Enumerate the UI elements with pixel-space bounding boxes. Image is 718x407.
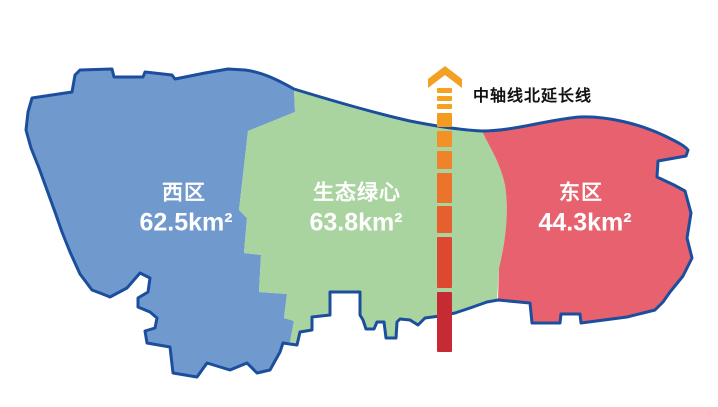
axis-dash <box>437 173 452 203</box>
district-map: 西区 62.5km² 生态绿心 63.8km² 东区 44.3km² 中轴线北延… <box>0 0 718 407</box>
axis-dash <box>437 113 452 127</box>
axis-dash <box>437 151 452 169</box>
axis-dash <box>437 292 452 352</box>
region-west-area: 62.5km² <box>139 211 232 236</box>
axis-dash <box>437 206 452 233</box>
axis-arrow-icon <box>428 66 462 88</box>
axis-dash <box>437 237 452 288</box>
axis-dash <box>437 96 452 101</box>
region-east-label: 东区 <box>559 183 603 204</box>
region-west-label: 西区 <box>162 183 206 204</box>
axis-label: 中轴线北延长线 <box>473 89 592 105</box>
axis-dash <box>437 88 452 93</box>
axis-dash <box>437 104 452 109</box>
axis-dash <box>437 131 452 147</box>
region-green-heart-label: 生态绿心 <box>313 183 401 204</box>
region-green-heart-area: 63.8km² <box>309 211 402 236</box>
region-east-area: 44.3km² <box>538 211 631 236</box>
